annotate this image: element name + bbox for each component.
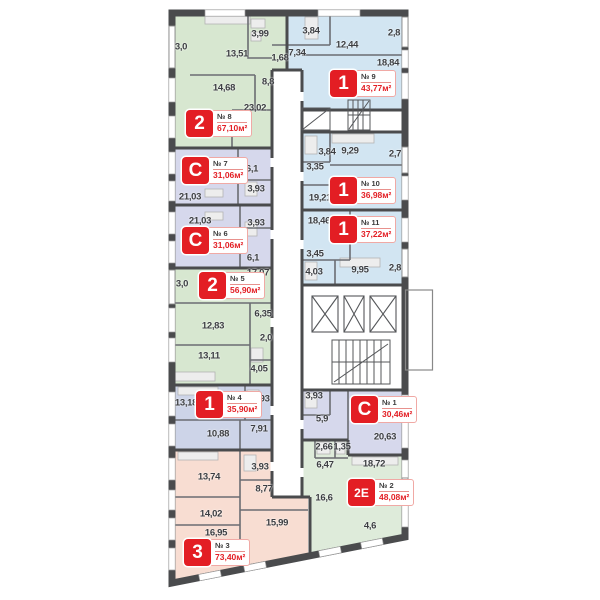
apartment-number: № 11 (361, 218, 391, 229)
apartment-number: № 2 (379, 481, 409, 492)
apartment-info-panel: № 1036,98м² (354, 177, 396, 204)
apartment-info-panel: № 248,08м² (372, 479, 414, 506)
apartment-type-label: 2 (186, 110, 213, 137)
apartment-number: № 9 (361, 72, 391, 83)
apartment-number: № 6 (213, 229, 243, 240)
apartment-info-panel: № 373,40м² (208, 539, 250, 566)
apartment-info-panel: № 631,06м² (206, 227, 248, 254)
apartment-number: № 1 (382, 398, 412, 409)
apartment-info-panel: № 731,06м² (206, 157, 248, 184)
apartment-type-label: 1 (330, 70, 357, 97)
floorplan-canvas: 2№ 867,10м²3,013,513,991,6814,688,823,02… (0, 0, 600, 600)
apartment-badge-1[interactable]: C№ 130,46м² (351, 396, 417, 423)
apartment-area: 48,08м² (379, 492, 409, 503)
apartment-area: 36,98м² (361, 190, 391, 201)
apartment-number: № 3 (215, 541, 245, 552)
apartment-info-panel: № 556,90м² (223, 272, 265, 299)
apartment-type-label: C (182, 227, 209, 254)
apartment-number: № 5 (230, 274, 260, 285)
apartment-badge-2[interactable]: 2E№ 248,08м² (348, 479, 414, 506)
apartment-badge-4[interactable]: 1№ 435,90м² (196, 391, 262, 418)
apartment-area: 31,06м² (213, 240, 243, 251)
apartment-number: № 7 (213, 159, 243, 170)
apartment-badge-10[interactable]: 1№ 1036,98м² (330, 177, 396, 204)
apartment-area: 67,10м² (217, 123, 247, 134)
apartment-area: 73,40м² (215, 552, 245, 563)
apartment-number: № 4 (227, 393, 257, 404)
apartment-badge-8[interactable]: 2№ 867,10м² (186, 110, 252, 137)
staircase-icon (332, 340, 390, 384)
apartment-area: 43,77м² (361, 83, 391, 94)
apartment-area: 30,46м² (382, 409, 412, 420)
door-gaps (271, 92, 304, 477)
apartment-area: 35,90м² (227, 404, 257, 415)
apartment-info-panel: № 435,90м² (220, 391, 262, 418)
apartment-type-label: 3 (184, 539, 211, 566)
apartment-type-label: 1 (330, 216, 357, 243)
apartment-number: № 8 (217, 112, 247, 123)
exterior-platform-outline (406, 290, 433, 370)
apartment-info-panel: № 1137,22м² (354, 216, 396, 243)
apartment-badge-7[interactable]: C№ 731,06м² (182, 157, 248, 184)
apartment-type-label: 2E (348, 479, 375, 506)
apartment-badge-3[interactable]: 3№ 373,40м² (184, 539, 250, 566)
apartment-type-label: C (351, 396, 378, 423)
apartment-badge-6[interactable]: C№ 631,06м² (182, 227, 248, 254)
apartment-area: 37,22м² (361, 229, 391, 240)
apartment-number: № 10 (361, 179, 391, 190)
apartment-type-label: 1 (196, 391, 223, 418)
apartment-badge-9[interactable]: 1№ 943,77м² (330, 70, 396, 97)
apartment-badge-5[interactable]: 2№ 556,90м² (199, 272, 265, 299)
floorplan-svg (0, 0, 600, 600)
apartment-type-label: 2 (199, 272, 226, 299)
apartment-type-label: 1 (330, 177, 357, 204)
elevator-icons (312, 296, 396, 332)
apartment-area: 56,90м² (230, 285, 260, 296)
apartment-info-panel: № 867,10м² (210, 110, 252, 137)
apartment-info-panel: № 943,77м² (354, 70, 396, 97)
apartment-info-panel: № 130,46м² (375, 396, 417, 423)
apartment-type-label: C (182, 157, 209, 184)
apartment-badge-11[interactable]: 1№ 1137,22м² (330, 216, 396, 243)
apartment-area: 31,06м² (213, 170, 243, 181)
